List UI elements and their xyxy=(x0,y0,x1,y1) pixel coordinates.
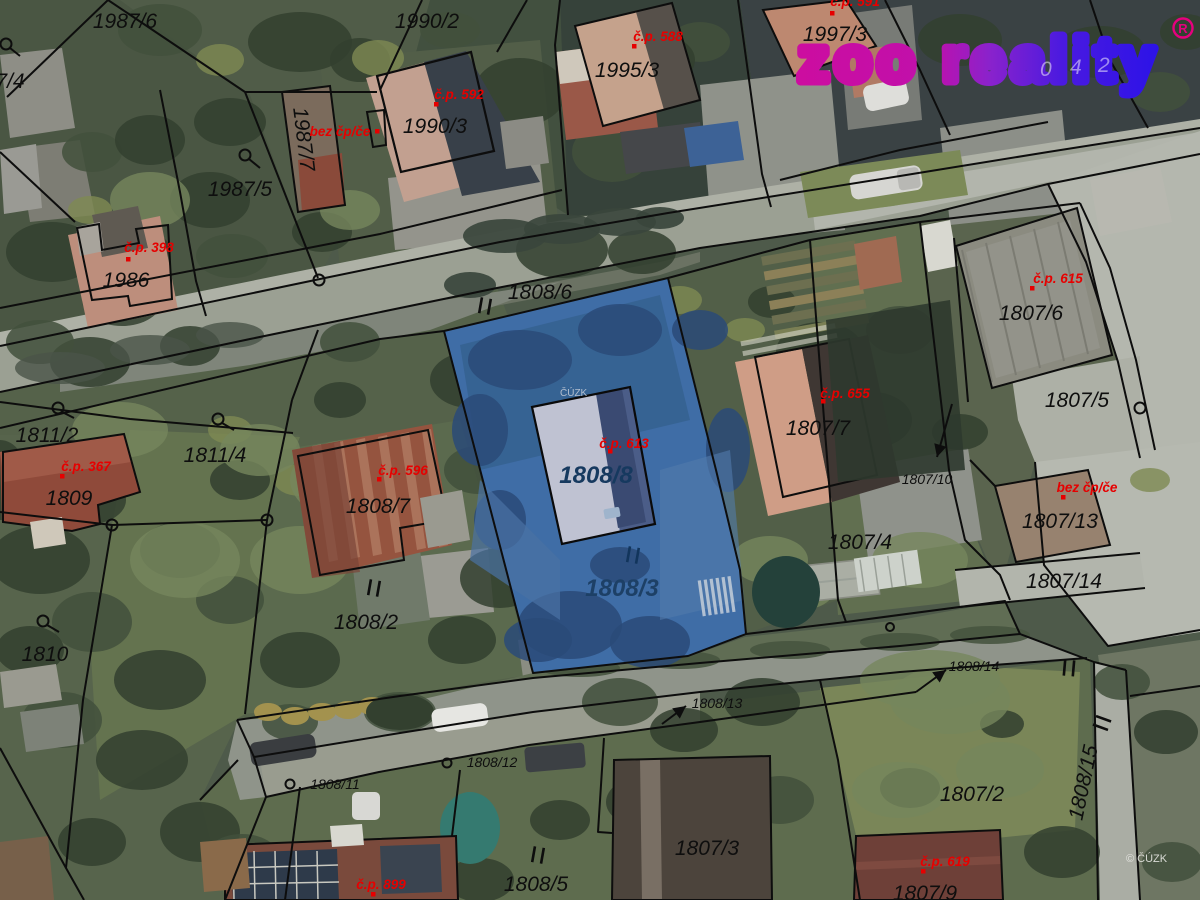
svg-text:č.p. 588: č.p. 588 xyxy=(633,29,683,44)
svg-text:č.p. 655: č.p. 655 xyxy=(820,386,870,401)
svg-text:1990/3: 1990/3 xyxy=(403,115,468,138)
svg-text:1986: 1986 xyxy=(103,269,150,292)
svg-text:č.p. 619: č.p. 619 xyxy=(920,854,970,869)
svg-text:1810: 1810 xyxy=(22,643,69,666)
svg-text:1987/6: 1987/6 xyxy=(93,10,158,33)
svg-text:1807/6: 1807/6 xyxy=(999,302,1064,325)
svg-text:bez čp/če: bez čp/če xyxy=(1057,480,1118,495)
svg-text:ČÚZK: ČÚZK xyxy=(560,386,588,399)
svg-text:1808/7: 1808/7 xyxy=(346,495,412,518)
svg-text:1811/2: 1811/2 xyxy=(16,424,79,447)
svg-text:1987/5: 1987/5 xyxy=(208,178,273,201)
svg-text:č.p. 615: č.p. 615 xyxy=(1033,271,1083,286)
svg-text:1807/4: 1807/4 xyxy=(828,531,892,554)
svg-text:1807/9: 1807/9 xyxy=(893,882,958,900)
svg-text:1809: 1809 xyxy=(46,487,93,510)
svg-text:1808/13: 1808/13 xyxy=(692,695,743,711)
svg-text:1807/2: 1807/2 xyxy=(940,783,1005,806)
svg-text:1811/4: 1811/4 xyxy=(184,444,247,467)
svg-text:1807/14: 1807/14 xyxy=(1026,570,1102,593)
svg-text:č.p. 591: č.p. 591 xyxy=(830,0,880,9)
svg-text:č.p. 596: č.p. 596 xyxy=(378,463,428,478)
svg-text:2: 2 xyxy=(1097,54,1110,77)
svg-text:1808/14: 1808/14 xyxy=(949,658,1000,674)
svg-text:1808/6: 1808/6 xyxy=(508,281,573,304)
svg-text:7/4: 7/4 xyxy=(0,70,25,93)
svg-text:0: 0 xyxy=(1040,58,1052,81)
svg-text:1808/12: 1808/12 xyxy=(467,754,518,770)
svg-text:1807/7: 1807/7 xyxy=(786,417,852,440)
svg-text:1808/5: 1808/5 xyxy=(504,873,569,896)
svg-text:1808/11: 1808/11 xyxy=(310,776,360,792)
svg-text:4: 4 xyxy=(1070,56,1082,79)
svg-text:1995/3: 1995/3 xyxy=(595,59,660,82)
svg-text:č.p. 899: č.p. 899 xyxy=(356,877,406,892)
svg-text:1808/3: 1808/3 xyxy=(585,575,659,602)
svg-text:1808/2: 1808/2 xyxy=(334,611,399,634)
svg-text:1808/8: 1808/8 xyxy=(559,462,633,489)
svg-text:© ČÚZK: © ČÚZK xyxy=(1126,852,1168,865)
svg-text:1807/13: 1807/13 xyxy=(1022,510,1098,533)
svg-text:1990/2: 1990/2 xyxy=(395,10,460,33)
svg-text:R: R xyxy=(1178,21,1188,36)
svg-text:č.p. 592: č.p. 592 xyxy=(434,87,484,102)
svg-text:1807/5: 1807/5 xyxy=(1045,389,1110,412)
svg-text:č.p. 398: č.p. 398 xyxy=(124,240,174,255)
svg-text:1807/10: 1807/10 xyxy=(902,471,953,487)
svg-text:1807/3: 1807/3 xyxy=(675,837,740,860)
svg-text:č.p. 613: č.p. 613 xyxy=(599,436,649,451)
svg-text:bez čp/če: bez čp/če xyxy=(310,124,371,139)
svg-text:č.p. 367: č.p. 367 xyxy=(61,459,112,474)
